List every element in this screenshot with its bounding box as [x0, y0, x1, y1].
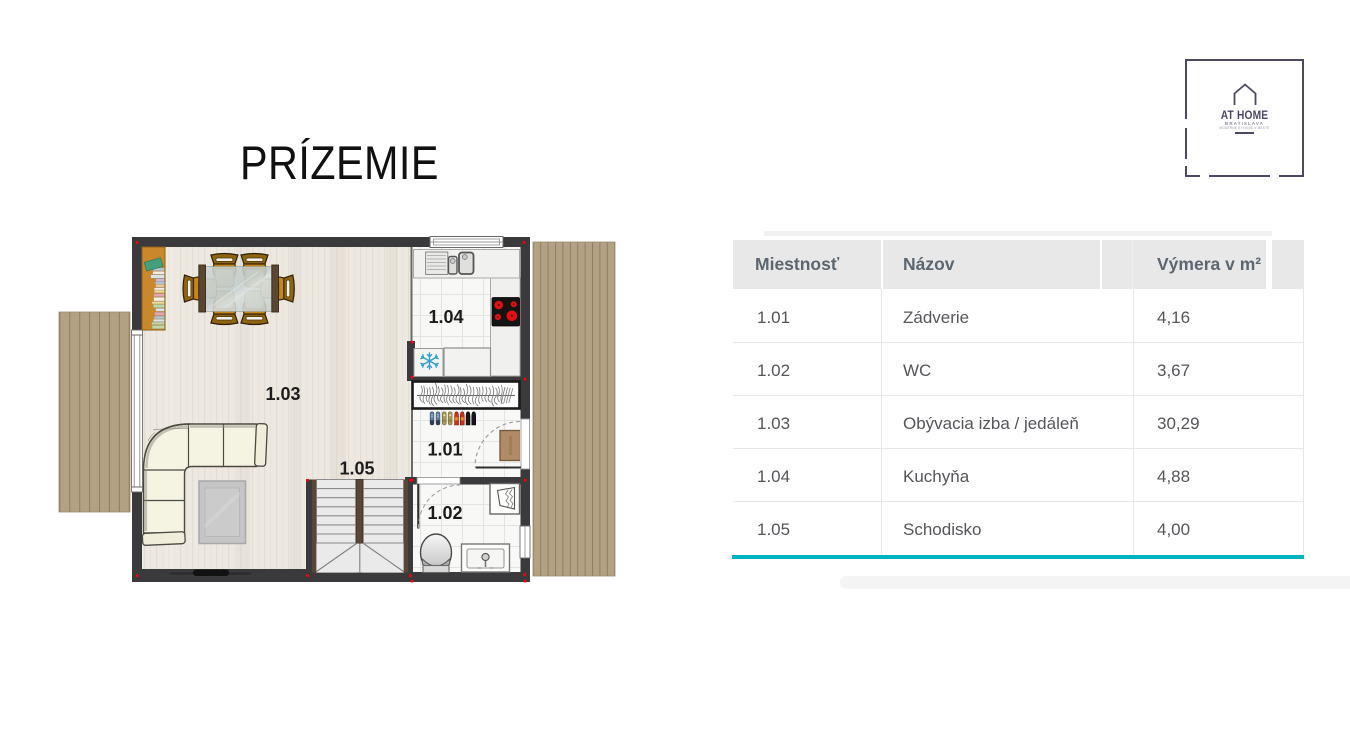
svg-text:1.02: 1.02	[427, 503, 462, 523]
svg-text:1.04: 1.04	[428, 307, 463, 327]
svg-text:1.05: 1.05	[339, 459, 374, 479]
svg-text:1.03: 1.03	[265, 384, 300, 404]
svg-text:1.01: 1.01	[427, 440, 462, 460]
